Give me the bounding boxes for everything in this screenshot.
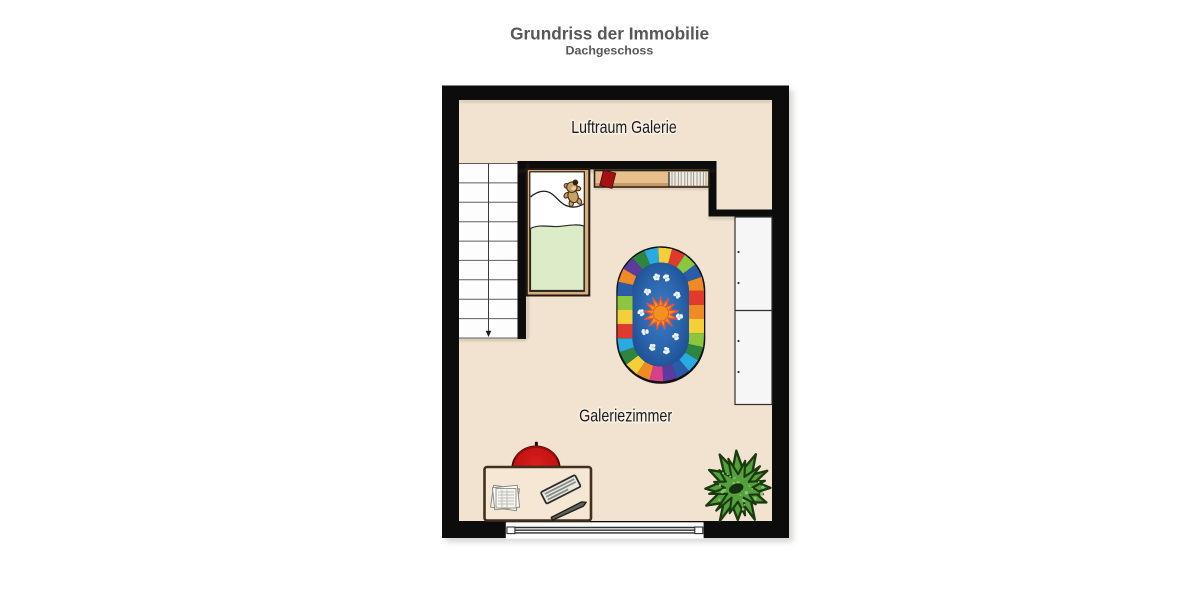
svg-text:Galeriezimmer: Galeriezimmer [579,406,672,426]
svg-text:Luftraum Galerie: Luftraum Galerie [571,117,677,137]
svg-text:Grundriss der Immobilie: Grundriss der Immobilie [510,23,709,43]
svg-text:Dachgeschoss: Dachgeschoss [566,44,654,58]
